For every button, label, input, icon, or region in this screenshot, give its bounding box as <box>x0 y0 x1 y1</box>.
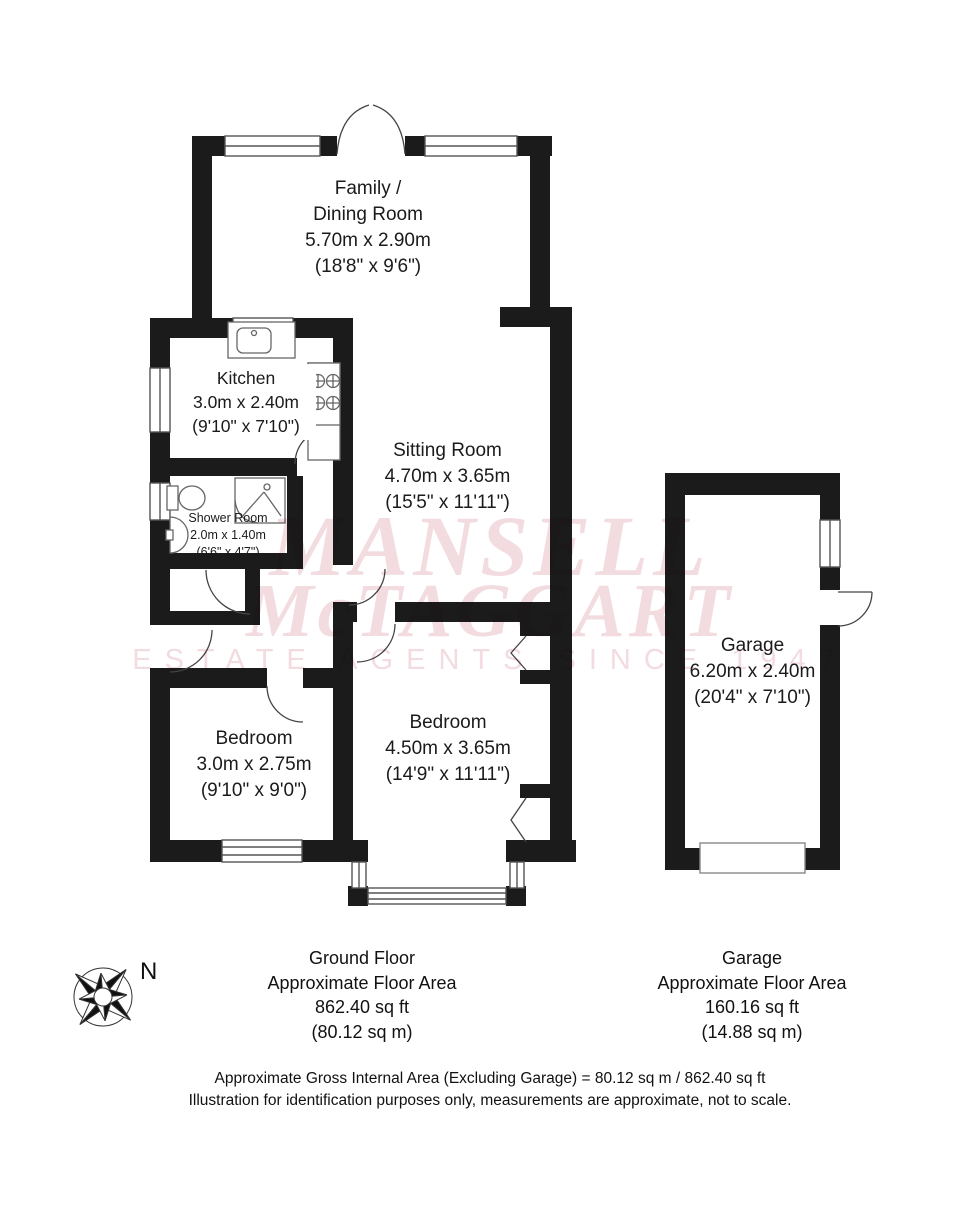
bay-window <box>352 862 524 904</box>
room-dims-imperial: (9'10" x 9'0") <box>163 778 345 804</box>
room-label-sitting: Sitting Room 4.70m x 3.65m (15'5" x 11'1… <box>345 438 550 516</box>
room-label-bedroom2: Bedroom 4.50m x 3.65m (14'9" x 11'11") <box>352 710 544 788</box>
garage-side-door-arc <box>838 592 872 626</box>
compass-rose-icon <box>52 946 153 1047</box>
summary-subtitle: Approximate Floor Area <box>210 971 514 996</box>
room-label-garage: Garage 6.20m x 2.40m (20'4" x 7'10") <box>660 633 845 711</box>
room-name: Dining Room <box>218 202 518 228</box>
room-name: Sitting Room <box>345 438 550 464</box>
summary-sqft: 160.16 sq ft <box>600 995 904 1020</box>
room-dims-imperial: (18'8" x 9'6") <box>218 254 518 280</box>
room-dims-metric: 5.70m x 2.90m <box>218 228 518 254</box>
room-dims-metric: 2.0m x 1.40m <box>176 527 280 544</box>
summary-title: Ground Floor <box>210 946 514 971</box>
front-door-arc <box>170 630 212 672</box>
room-label-family-dining: Family / Dining Room 5.70m x 2.90m (18'8… <box>218 176 518 280</box>
wardrobe-bifold-door <box>511 798 526 842</box>
room-dims-imperial: (15'5" x 11'11") <box>345 490 550 516</box>
room-name: Shower Room <box>176 510 280 527</box>
room-dims-metric: 4.70m x 3.65m <box>345 464 550 490</box>
room-name: Bedroom <box>352 710 544 736</box>
ground-floor-area-summary: Ground Floor Approximate Floor Area 862.… <box>210 946 514 1044</box>
room-dims-imperial: (9'10" x 7'10") <box>176 414 316 438</box>
french-door-right-leaf <box>373 105 405 154</box>
wardrobe-bifold-door <box>511 636 526 670</box>
footer-disclaimer: Approximate Gross Internal Area (Excludi… <box>88 1068 892 1112</box>
summary-sqm: (14.88 sq m) <box>600 1020 904 1045</box>
sitting-room-door-arc <box>349 569 385 605</box>
room-dims-metric: 4.50m x 3.65m <box>352 736 544 762</box>
window <box>225 136 320 156</box>
garage-area-summary: Garage Approximate Floor Area 160.16 sq … <box>600 946 904 1044</box>
room-label-bedroom1: Bedroom 3.0m x 2.75m (9'10" x 9'0") <box>163 726 345 804</box>
gross-area-text: Approximate Gross Internal Area (Excludi… <box>88 1068 892 1090</box>
room-label-shower: Shower Room 2.0m x 1.40m (6'6" x 4'7") <box>176 510 280 561</box>
north-label: N <box>140 958 157 986</box>
room-dims-imperial: (14'9" x 11'11") <box>352 762 544 788</box>
room-name: Bedroom <box>163 726 345 752</box>
room-label-kitchen: Kitchen 3.0m x 2.40m (9'10" x 7'10") <box>176 364 316 440</box>
garage-door <box>700 843 805 873</box>
window <box>425 136 517 156</box>
room-name: Kitchen <box>176 366 316 390</box>
disclaimer-text: Illustration for identification purposes… <box>88 1090 892 1112</box>
cupboard-door-arc <box>206 570 250 614</box>
room-dims-metric: 3.0m x 2.40m <box>176 390 316 414</box>
room-dims-imperial: (6'6" x 4'7") <box>176 544 280 561</box>
room-dims-metric: 6.20m x 2.40m <box>660 659 845 685</box>
room-dims-metric: 3.0m x 2.75m <box>163 752 345 778</box>
floorplan-page: { "watermark": { "line1": "MANSELL", "li… <box>0 0 980 1206</box>
window <box>150 368 170 432</box>
french-door-left-leaf <box>337 105 369 154</box>
window <box>222 840 302 862</box>
room-dims-imperial: (20'4" x 7'10") <box>660 685 845 711</box>
summary-sqm: (80.12 sq m) <box>210 1020 514 1045</box>
summary-title: Garage <box>600 946 904 971</box>
bedroom2-door-arc <box>357 624 395 662</box>
window <box>820 520 840 567</box>
room-name: Family / <box>218 176 518 202</box>
summary-sqft: 862.40 sq ft <box>210 995 514 1020</box>
room-name: Garage <box>660 633 845 659</box>
bedroom1-door-arc <box>267 686 303 722</box>
toilet <box>167 486 205 510</box>
kitchen-sink <box>228 322 295 358</box>
summary-subtitle: Approximate Floor Area <box>600 971 904 996</box>
